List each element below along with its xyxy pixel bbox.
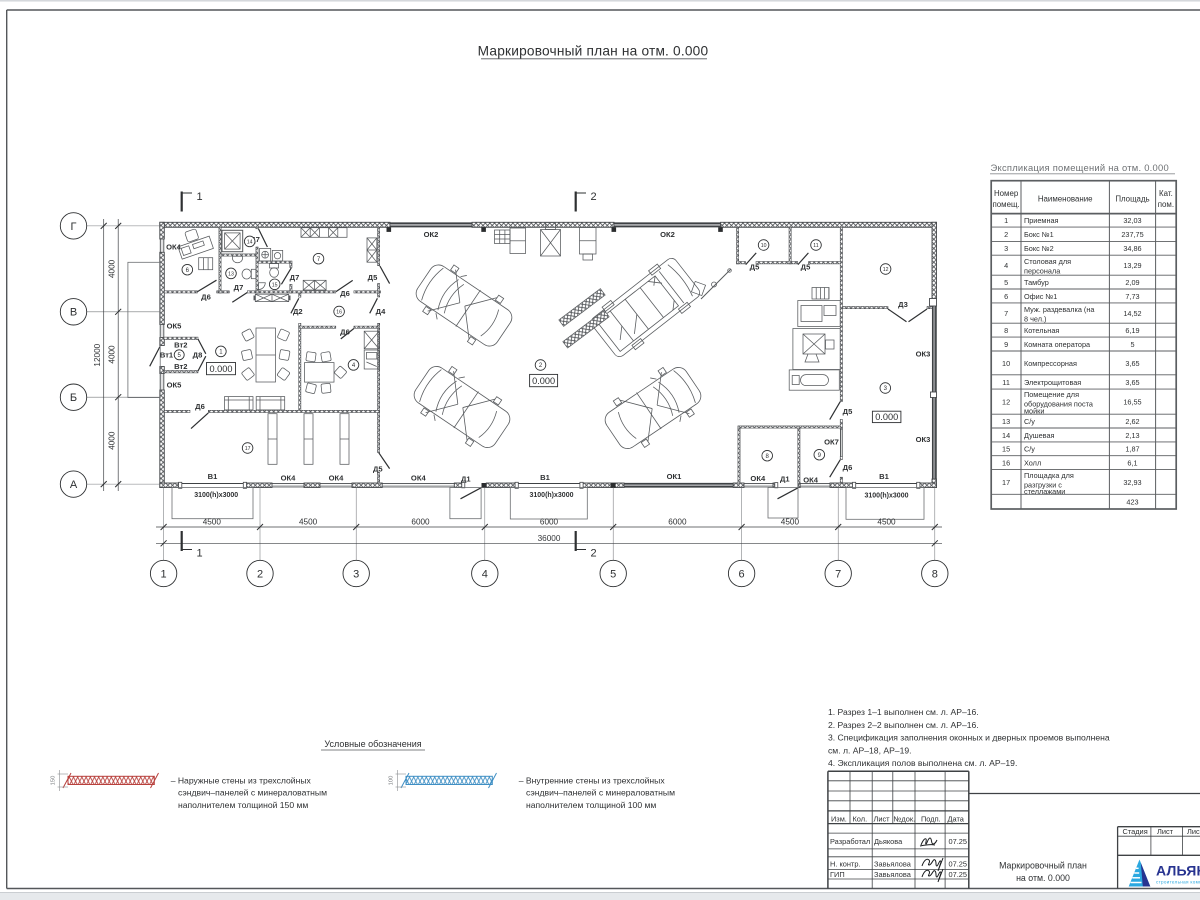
svg-text:17: 17 [245, 446, 251, 452]
svg-text:Наименование: Наименование [1038, 195, 1093, 204]
svg-text:Приемная: Приемная [1024, 216, 1059, 225]
svg-text:Д7: Д7 [290, 273, 300, 282]
svg-text:Муж. раздевалка (на: Муж. раздевалка (на [1024, 305, 1095, 314]
svg-text:ОК3: ОК3 [916, 350, 931, 359]
svg-text:4000: 4000 [108, 431, 117, 450]
svg-text:Д2: Д2 [293, 307, 303, 316]
svg-text:Бокс №2: Бокс №2 [1024, 244, 1054, 253]
svg-text:Лис: Лис [1187, 827, 1200, 836]
svg-text:Столовая для: Столовая для [1024, 257, 1071, 266]
svg-text:Г: Г [71, 221, 77, 233]
svg-text:Д5: Д5 [843, 407, 853, 416]
svg-text:Д7: Д7 [234, 283, 244, 292]
svg-text:3,65: 3,65 [1125, 359, 1139, 368]
svg-text:Условные обозначения: Условные обозначения [324, 739, 421, 749]
svg-text:6,1: 6,1 [1127, 459, 1137, 468]
svg-text:Вт2: Вт2 [174, 340, 187, 349]
svg-text:4500: 4500 [781, 517, 800, 526]
svg-text:строительная компания: строительная компания [1156, 880, 1200, 885]
svg-text:Компрессорная: Компрессорная [1024, 359, 1077, 368]
svg-text:Д5: Д5 [368, 273, 378, 282]
svg-text:13,29: 13,29 [1123, 261, 1141, 270]
svg-text:Д3: Д3 [898, 300, 908, 309]
svg-text:15: 15 [272, 282, 278, 288]
svg-text:6: 6 [1004, 292, 1008, 301]
svg-text:ОК4: ОК4 [750, 474, 766, 483]
svg-text:Маркировочный план на отм. 0.0: Маркировочный план на отм. 0.000 [478, 44, 709, 59]
svg-text:5: 5 [1004, 278, 1008, 287]
svg-text:12000: 12000 [93, 343, 102, 366]
svg-text:А: А [70, 479, 78, 491]
svg-text:Кол.: Кол. [853, 814, 868, 823]
svg-text:15: 15 [1002, 445, 1010, 454]
svg-text:36000: 36000 [538, 534, 561, 543]
svg-text:ОК1: ОК1 [667, 472, 683, 481]
svg-text:07.25: 07.25 [949, 870, 968, 879]
svg-text:14: 14 [1002, 431, 1010, 440]
svg-text:7: 7 [1004, 309, 1008, 318]
svg-text:0.000: 0.000 [532, 376, 555, 386]
svg-text:Лист: Лист [1157, 827, 1174, 836]
svg-text:3100(h)x3000: 3100(h)x3000 [865, 493, 909, 500]
svg-text:№док.: №док. [894, 814, 916, 823]
svg-text:10: 10 [761, 243, 767, 249]
svg-text:сэндвич–панелей с минераловатн: сэндвич–панелей с минераловатным [178, 788, 327, 798]
svg-text:3,65: 3,65 [1125, 378, 1139, 387]
svg-text:7: 7 [835, 568, 841, 580]
svg-text:наполнителем толщиной 150 мм: наполнителем толщиной 150 мм [178, 800, 308, 810]
svg-text:Дата: Дата [948, 814, 965, 823]
svg-text:В1: В1 [540, 473, 550, 482]
svg-text:Изм.: Изм. [831, 814, 847, 823]
svg-text:3: 3 [1004, 244, 1008, 253]
svg-text:Д6: Д6 [340, 327, 350, 336]
svg-text:Лист: Лист [874, 814, 891, 823]
svg-text:6000: 6000 [668, 517, 687, 526]
svg-text:2. Разрез 2–2 выполнен см. л.: 2. Разрез 2–2 выполнен см. л. АР–16. [828, 720, 979, 730]
svg-text:помещ.: помещ. [993, 200, 1020, 209]
svg-text:5: 5 [1130, 340, 1134, 349]
svg-text:пом.: пом. [1158, 200, 1174, 209]
svg-text:Площадь: Площадь [1115, 195, 1149, 204]
svg-text:8 чел.): 8 чел.) [1024, 315, 1046, 324]
svg-text:Кат.: Кат. [1159, 189, 1173, 198]
svg-text:1: 1 [197, 191, 203, 203]
svg-text:Экспликация помещений на отм.: Экспликация помещений на отм. 0.000 [991, 162, 1169, 173]
svg-text:Д6: Д6 [195, 402, 205, 411]
svg-text:ОК4: ОК4 [411, 474, 427, 483]
svg-text:16,55: 16,55 [1123, 398, 1141, 407]
svg-text:Маркировочный план: Маркировочный план [999, 861, 1087, 871]
svg-text:11: 11 [813, 243, 818, 249]
svg-text:Офис №1: Офис №1 [1024, 292, 1057, 301]
svg-text:стеллажами: стеллажами [1024, 487, 1065, 496]
svg-text:32,03: 32,03 [1123, 216, 1141, 225]
svg-text:Завьялова: Завьялова [874, 870, 912, 879]
svg-text:8: 8 [1004, 326, 1008, 335]
svg-text:ОК5: ОК5 [167, 322, 183, 331]
svg-text:12: 12 [883, 267, 889, 273]
svg-text:14: 14 [247, 239, 253, 245]
svg-text:– Внутренние стены из трехслой: – Внутренние стены из трехслойных [519, 776, 666, 786]
svg-text:4500: 4500 [203, 517, 222, 526]
svg-text:11: 11 [1002, 378, 1010, 387]
svg-text:Д1: Д1 [780, 474, 790, 483]
svg-text:В1: В1 [208, 472, 218, 481]
svg-text:ОК7: ОК7 [824, 437, 839, 446]
svg-text:12: 12 [1002, 398, 1010, 407]
svg-text:1,87: 1,87 [1125, 445, 1139, 454]
svg-text:34,86: 34,86 [1123, 244, 1141, 253]
svg-text:Д6: Д6 [340, 289, 350, 298]
svg-text:10: 10 [1002, 359, 1010, 368]
svg-text:Д6: Д6 [843, 463, 853, 472]
svg-text:1: 1 [161, 568, 167, 580]
svg-text:Б: Б [70, 392, 77, 404]
svg-text:В: В [70, 307, 77, 319]
svg-text:на отм. 0.000: на отм. 0.000 [1016, 873, 1070, 883]
svg-text:Д8: Д8 [193, 351, 203, 360]
svg-text:Вт1: Вт1 [160, 351, 174, 360]
svg-text:423: 423 [1126, 498, 1138, 507]
svg-text:2: 2 [591, 548, 597, 560]
svg-text:2: 2 [591, 191, 597, 203]
svg-text:16: 16 [1002, 459, 1010, 468]
svg-text:7,73: 7,73 [1125, 292, 1139, 301]
svg-text:4500: 4500 [877, 517, 896, 526]
svg-text:ОК3: ОК3 [916, 435, 931, 444]
svg-text:1: 1 [1004, 216, 1008, 225]
svg-text:Н. контр.: Н. контр. [830, 859, 861, 868]
svg-text:мойки: мойки [1024, 407, 1044, 416]
svg-text:Д6: Д6 [201, 292, 211, 301]
svg-text:Электрощитовая: Электрощитовая [1024, 378, 1081, 387]
svg-text:Дьякова: Дьякова [874, 837, 903, 846]
svg-text:ОК2: ОК2 [660, 230, 675, 239]
svg-text:4: 4 [1004, 261, 1008, 270]
svg-text:наполнителем толщиной 100 мм: наполнителем толщиной 100 мм [526, 800, 656, 810]
svg-text:9: 9 [1004, 340, 1008, 349]
svg-text:С/у: С/у [1024, 417, 1035, 426]
svg-text:персонала: персонала [1024, 267, 1061, 276]
svg-text:Площадка для: Площадка для [1024, 471, 1074, 480]
svg-text:4: 4 [482, 568, 488, 580]
svg-text:13: 13 [1002, 417, 1010, 426]
svg-text:Д5: Д5 [801, 262, 811, 271]
svg-text:ОК2: ОК2 [424, 230, 439, 239]
svg-text:Котельная: Котельная [1024, 326, 1059, 335]
svg-text:32,93: 32,93 [1123, 478, 1141, 487]
svg-text:150: 150 [51, 776, 57, 786]
svg-text:2,09: 2,09 [1125, 278, 1139, 287]
svg-text:4500: 4500 [299, 517, 318, 526]
svg-text:3100(h)x3000: 3100(h)x3000 [194, 492, 238, 499]
svg-text:3100(h)x3000: 3100(h)x3000 [530, 492, 574, 499]
svg-text:1: 1 [197, 548, 203, 560]
svg-text:13: 13 [228, 271, 234, 277]
svg-text:6,19: 6,19 [1125, 326, 1139, 335]
svg-text:ОК4: ОК4 [803, 475, 819, 484]
svg-text:16: 16 [336, 310, 342, 316]
svg-text:6000: 6000 [411, 517, 430, 526]
svg-text:2: 2 [257, 568, 263, 580]
svg-text:– Наружные стены из трехслойны: – Наружные стены из трехслойных [171, 776, 312, 786]
svg-text:Комната оператора: Комната оператора [1024, 340, 1091, 349]
svg-text:0.000: 0.000 [875, 412, 898, 422]
svg-text:Д4: Д4 [376, 307, 386, 316]
svg-text:07.25: 07.25 [949, 837, 968, 846]
svg-text:Стадия: Стадия [1123, 827, 1148, 836]
svg-text:ОК4: ОК4 [281, 474, 297, 483]
svg-text:2: 2 [1004, 230, 1008, 239]
svg-text:Холл: Холл [1024, 459, 1041, 468]
svg-text:см. л. АР–18, АР–19.: см. л. АР–18, АР–19. [828, 745, 912, 755]
svg-text:Номер: Номер [994, 189, 1019, 198]
svg-text:3. Спецификация заполнения око: 3. Спецификация заполнения оконных и две… [828, 733, 1110, 743]
svg-text:АЛЬЯНС: АЛЬЯНС [1156, 863, 1200, 879]
svg-text:Завьялова: Завьялова [874, 859, 912, 868]
svg-text:Бокс №1: Бокс №1 [1024, 230, 1054, 239]
svg-text:С/у: С/у [1024, 445, 1035, 454]
svg-text:17: 17 [1002, 478, 1010, 487]
svg-text:Тамбур: Тамбур [1024, 278, 1049, 287]
svg-text:Душевая: Душевая [1024, 431, 1055, 440]
svg-text:ГИП: ГИП [830, 870, 845, 879]
svg-text:14,52: 14,52 [1123, 309, 1141, 318]
svg-text:сэндвич–панелей с минераловатн: сэндвич–панелей с минераловатным [526, 788, 675, 798]
svg-text:237,75: 237,75 [1121, 230, 1143, 239]
svg-text:6000: 6000 [540, 517, 559, 526]
svg-text:Подп.: Подп. [921, 814, 941, 823]
svg-text:Д1: Д1 [461, 474, 471, 483]
svg-text:1. Разрез 1–1 выполнен см. л.: 1. Разрез 1–1 выполнен см. л. АР–16. [828, 707, 979, 717]
svg-text:Д5: Д5 [373, 465, 383, 474]
svg-text:07.25: 07.25 [949, 859, 968, 868]
svg-text:4000: 4000 [108, 259, 117, 278]
svg-text:4000: 4000 [108, 345, 117, 364]
svg-text:5: 5 [610, 568, 616, 580]
svg-text:6: 6 [739, 568, 745, 580]
svg-text:0.000: 0.000 [210, 364, 233, 374]
svg-text:ОК5: ОК5 [167, 380, 183, 389]
svg-text:ОК4: ОК4 [329, 474, 345, 483]
svg-text:8: 8 [932, 568, 938, 580]
svg-text:В1: В1 [879, 472, 889, 481]
svg-text:Помещение для: Помещение для [1024, 390, 1079, 399]
svg-text:2,13: 2,13 [1125, 431, 1139, 440]
svg-text:4. Экспликация полов выполнена: 4. Экспликация полов выполнена см. л. АР… [828, 758, 1017, 768]
svg-text:Разработал: Разработал [830, 837, 870, 846]
svg-text:3: 3 [353, 568, 359, 580]
svg-text:2,62: 2,62 [1125, 417, 1139, 426]
svg-text:100: 100 [389, 776, 395, 786]
svg-text:Д5: Д5 [750, 262, 760, 271]
svg-text:Вт2: Вт2 [174, 362, 187, 371]
